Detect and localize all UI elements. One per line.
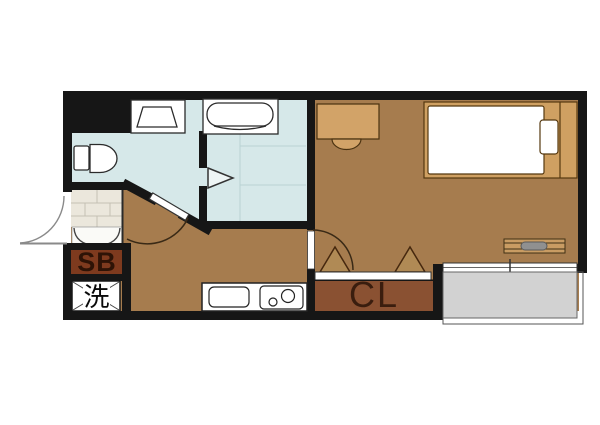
- washbasin: [131, 100, 185, 133]
- washing-machine-pan: 洗: [72, 281, 120, 312]
- bathtub: [203, 99, 278, 134]
- window-handle: [521, 242, 547, 250]
- entrance-door: [20, 196, 67, 244]
- wall-room-west-upper: [307, 99, 315, 230]
- room-door-leaf: [308, 231, 315, 269]
- floorplan-drawing: CL SB 洗: [0, 0, 600, 425]
- toilet-bowl: [90, 145, 117, 173]
- wall-washroom-south: [63, 182, 131, 190]
- entrance-door-arc: [20, 196, 64, 243]
- washbasin-bowl: [137, 107, 177, 127]
- wall-pillar-sb: [122, 243, 131, 320]
- wall-top: [63, 91, 587, 100]
- floorplan-canvas: CL SB 洗: [0, 0, 600, 425]
- balcony: [443, 259, 583, 324]
- bathtub-tub: [207, 103, 273, 126]
- closet-label: CL: [349, 274, 399, 315]
- bed: [424, 102, 577, 178]
- toilet-tank: [74, 146, 89, 170]
- wall-right: [578, 91, 587, 273]
- stove-burner-small: [269, 298, 277, 306]
- wall-room-west-lower: [307, 269, 315, 320]
- stove-burner-large: [282, 290, 295, 303]
- wall-left-lower: [63, 243, 72, 320]
- desk: [317, 104, 379, 139]
- shoe-box-label: SB: [77, 247, 117, 277]
- toilet: [74, 145, 117, 173]
- wall-bath-south: [199, 221, 315, 229]
- shoe-box: SB: [71, 247, 122, 277]
- window-handle-unit: [504, 239, 565, 253]
- kitchen-sink: [209, 287, 249, 307]
- washing-machine-label: 洗: [83, 282, 109, 312]
- bed-pillow: [540, 120, 558, 154]
- genkan-entrance: [71, 190, 123, 246]
- wall-bath-west-upper: [199, 131, 207, 168]
- wall-mass-topleft: [71, 99, 132, 133]
- wall-balcony-west: [433, 264, 443, 320]
- balcony-deck: [443, 272, 577, 318]
- wall-left-upper: [63, 91, 72, 192]
- bed-mattress: [428, 106, 544, 174]
- kitchen: [202, 283, 307, 311]
